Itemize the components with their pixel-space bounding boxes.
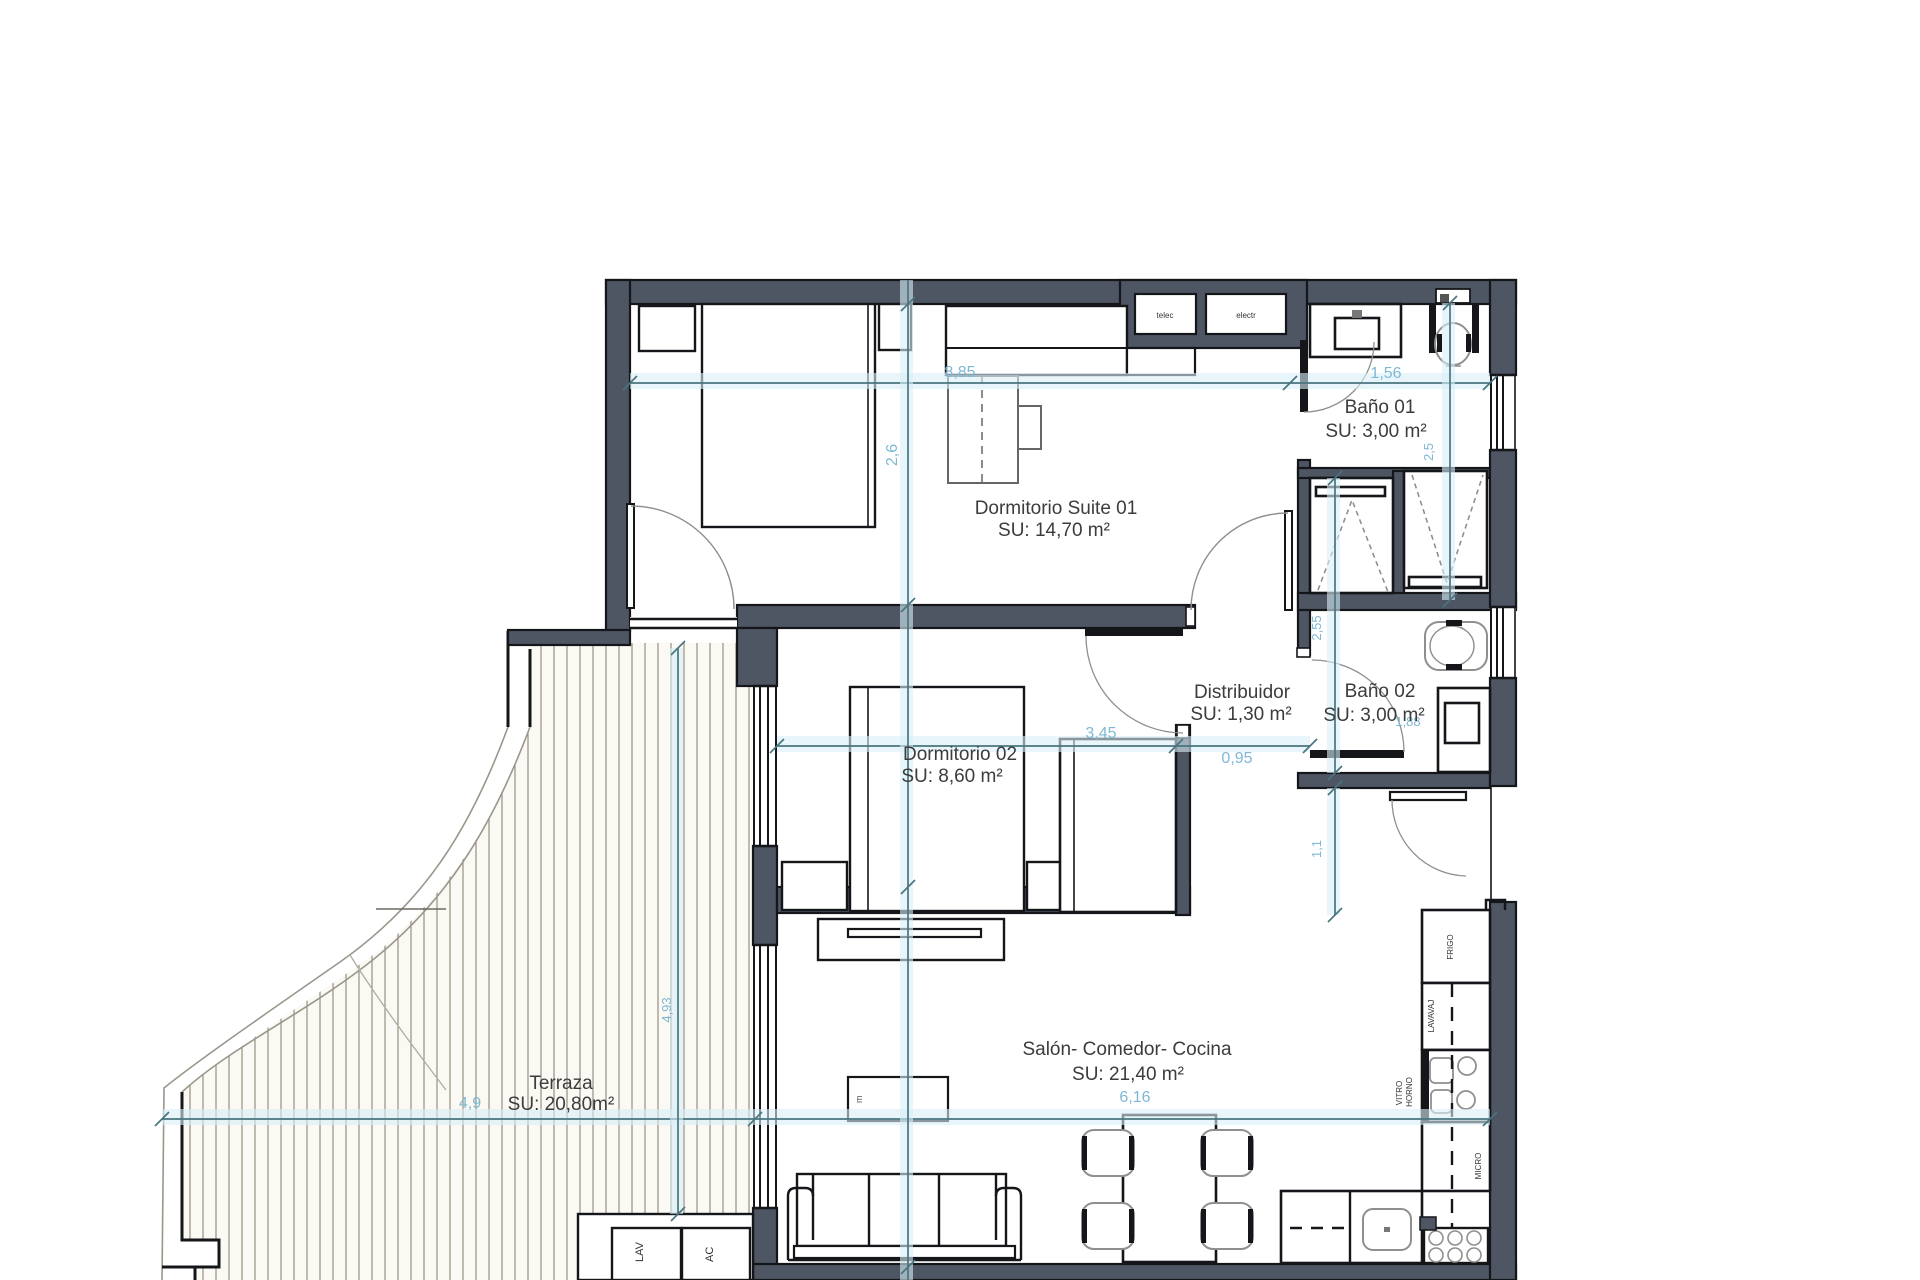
- svg-text:LAVAVAJ: LAVAVAJ: [1427, 1000, 1436, 1033]
- svg-text:Baño 01: Baño 01: [1345, 397, 1416, 418]
- svg-text:2,5: 2,5: [1421, 443, 1436, 461]
- svg-text:1,56: 1,56: [1370, 365, 1401, 382]
- svg-text:3,45: 3,45: [1085, 725, 1116, 742]
- svg-text:SU: 8,60 m²: SU: 8,60 m²: [901, 766, 1002, 787]
- svg-text:LAV: LAV: [634, 1241, 646, 1262]
- svg-text:0,95: 0,95: [1221, 750, 1252, 767]
- svg-text:SU: 20,80m²: SU: 20,80m²: [508, 1094, 615, 1115]
- svg-text:4,93: 4,93: [659, 997, 674, 1022]
- svg-text:Terraza: Terraza: [529, 1073, 593, 1094]
- svg-text:MICRO: MICRO: [1474, 1153, 1483, 1180]
- svg-text:HORNO: HORNO: [1405, 1077, 1414, 1107]
- svg-text:m: m: [854, 1096, 864, 1104]
- svg-text:Distribuidor: Distribuidor: [1194, 682, 1291, 703]
- svg-text:FRIGO: FRIGO: [1446, 934, 1455, 959]
- svg-text:Dormitorio Suite 01: Dormitorio Suite 01: [975, 498, 1138, 519]
- svg-text:Dormitorio 02: Dormitorio 02: [903, 744, 1017, 765]
- svg-text:1,1: 1,1: [1309, 840, 1324, 858]
- svg-text:AC: AC: [704, 1247, 716, 1262]
- svg-text:VITRO: VITRO: [1395, 1081, 1404, 1105]
- svg-text:SU: 3,00 m²: SU: 3,00 m²: [1323, 705, 1424, 726]
- svg-text:Baño 02: Baño 02: [1345, 681, 1416, 702]
- svg-text:2,6: 2,6: [884, 444, 901, 466]
- svg-text:2,55: 2,55: [1309, 615, 1324, 640]
- svg-text:SU: 3,00 m²: SU: 3,00 m²: [1325, 421, 1426, 442]
- svg-text:telec: telec: [1157, 311, 1174, 320]
- svg-text:SU: 1,30 m²: SU: 1,30 m²: [1190, 704, 1291, 725]
- svg-text:6,16: 6,16: [1119, 1089, 1150, 1106]
- svg-text:SU: 14,70 m²: SU: 14,70 m²: [998, 520, 1110, 541]
- svg-text:Salón- Comedor- Cocina: Salón- Comedor- Cocina: [1022, 1039, 1232, 1060]
- svg-text:4,9: 4,9: [459, 1095, 481, 1112]
- svg-text:SU: 21,40 m²: SU: 21,40 m²: [1072, 1064, 1184, 1085]
- svg-text:electr: electr: [1236, 311, 1256, 320]
- svg-text:8,85: 8,85: [944, 364, 975, 381]
